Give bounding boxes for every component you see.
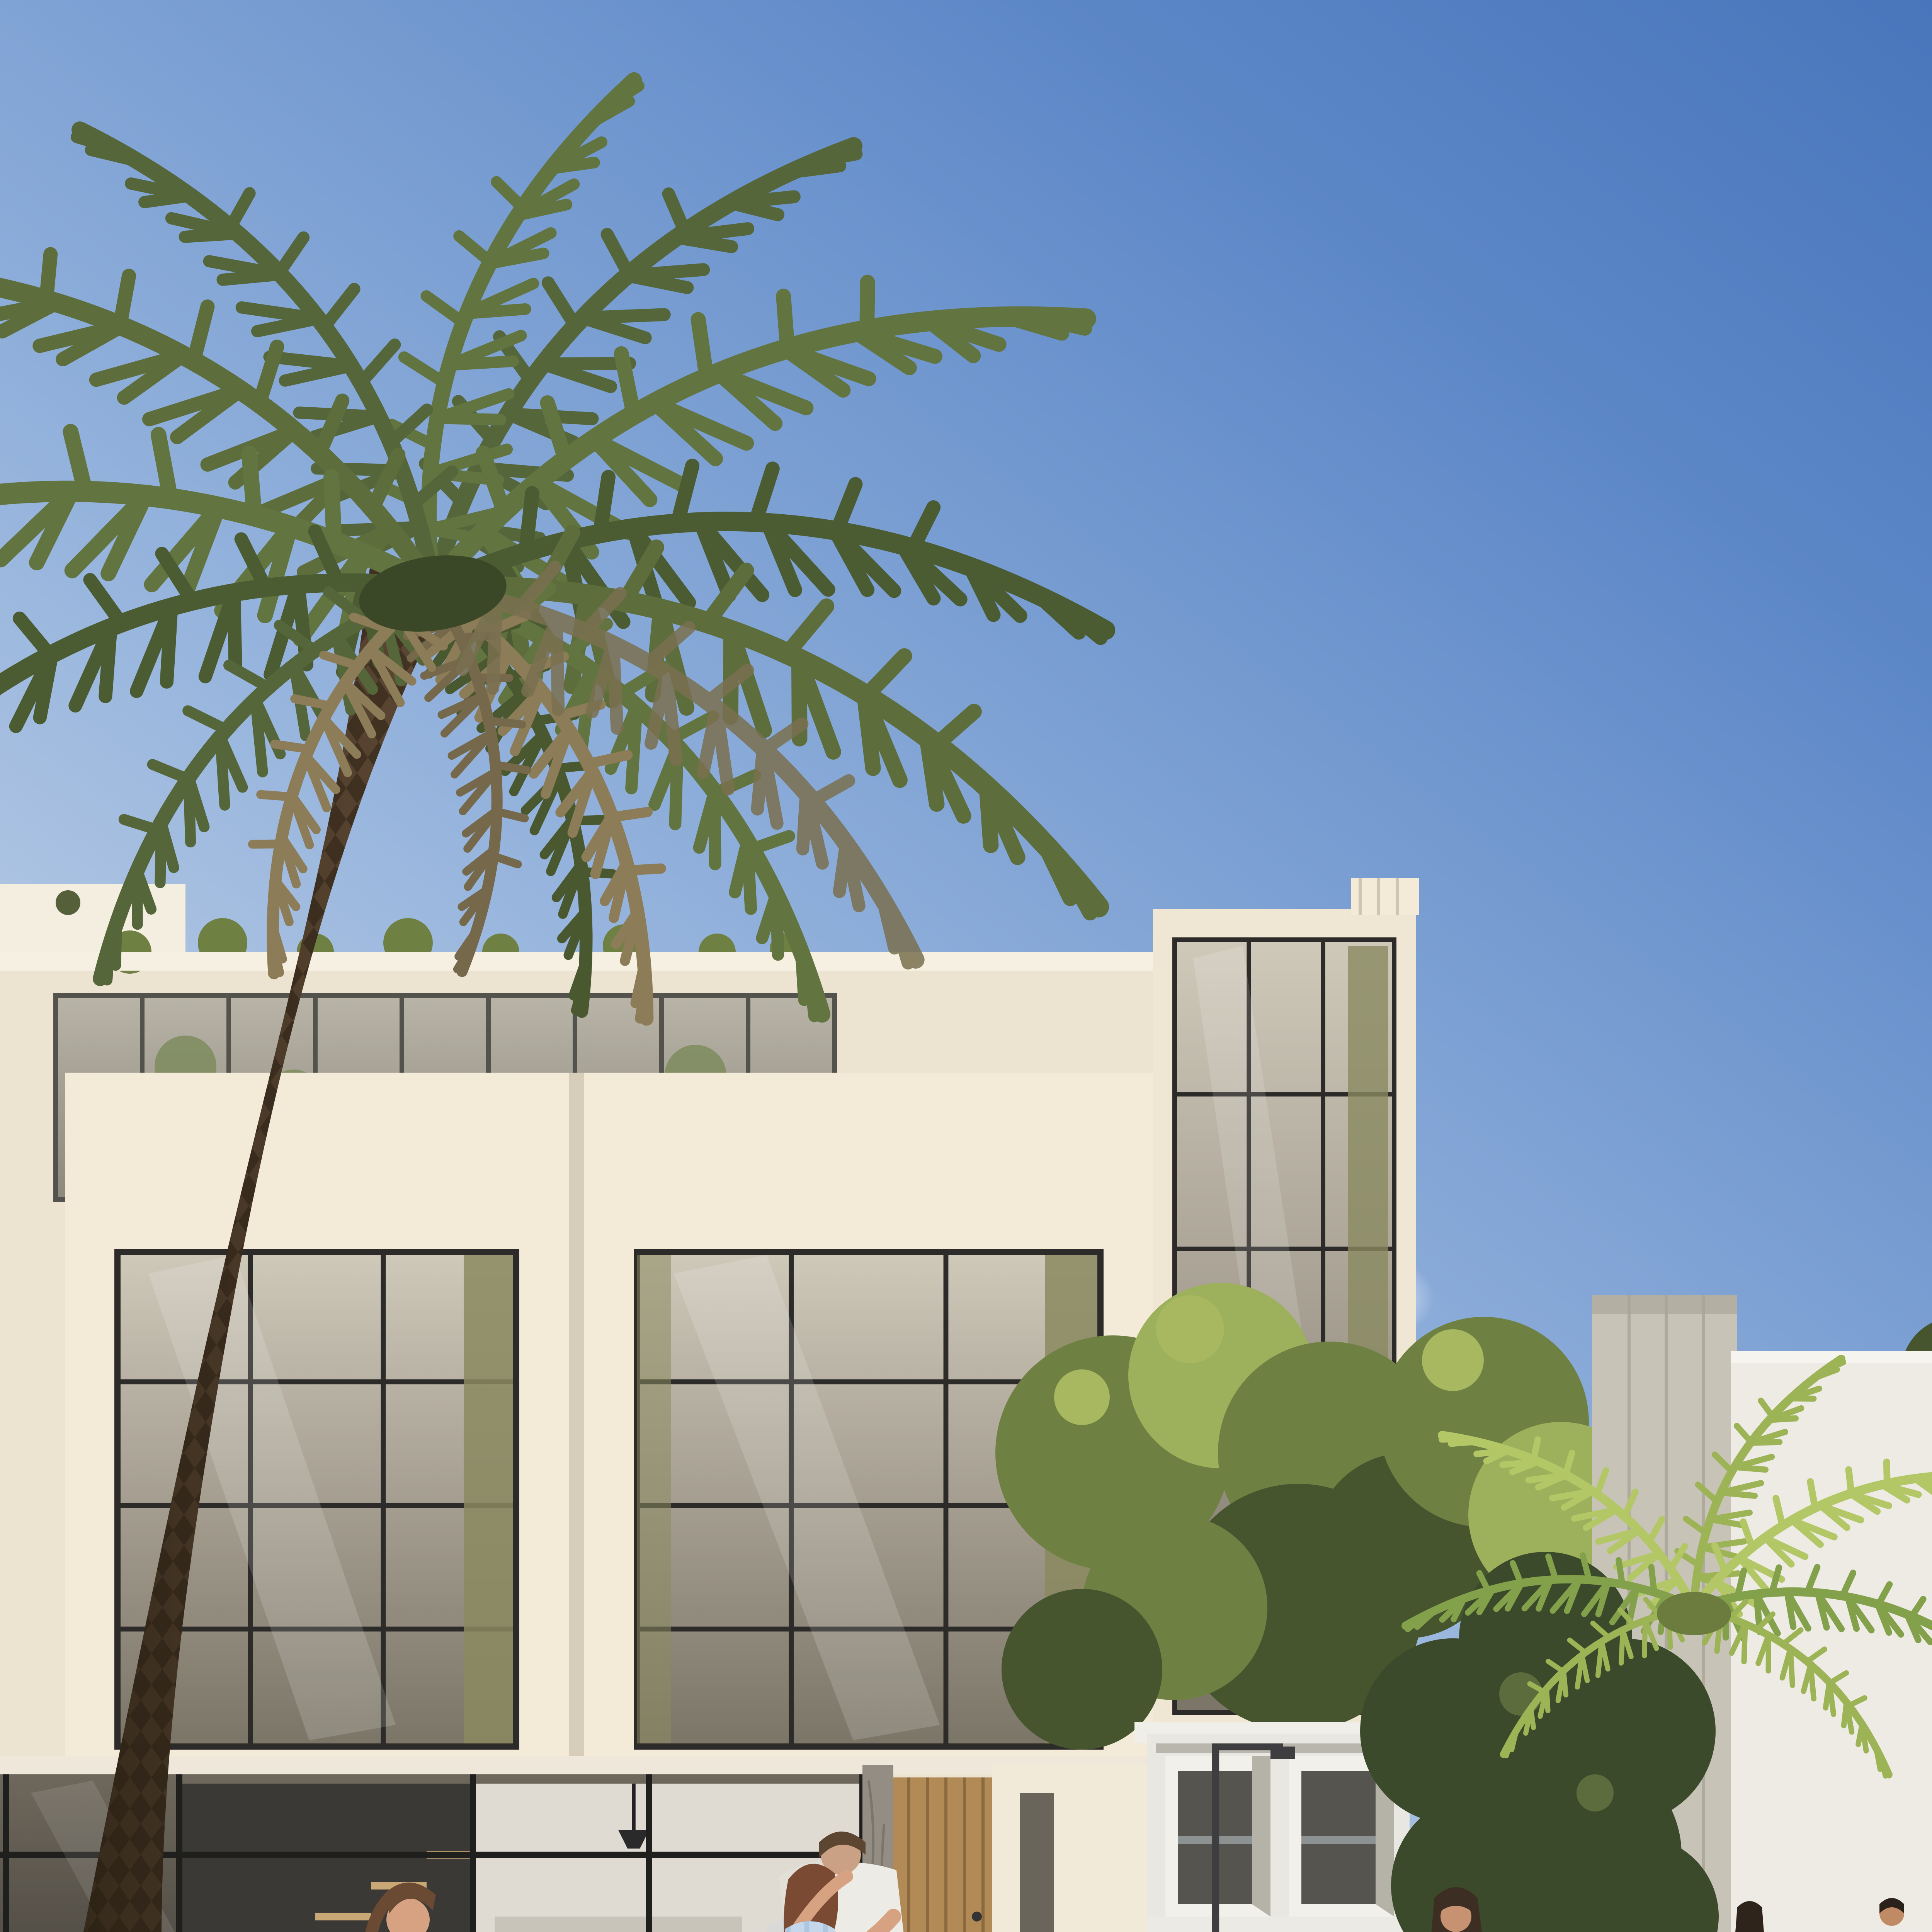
kitchen-counter	[495, 1917, 742, 1932]
curtain-olive	[464, 1255, 513, 1743]
storefront	[0, 1756, 1156, 1932]
slit-window	[1020, 1793, 1054, 1932]
return-wall	[992, 1765, 1156, 1932]
parapet-cap	[0, 952, 1156, 971]
architectural-rendering: Photorealistic architectural rendering o…	[0, 0, 1932, 1932]
door-handle	[972, 1912, 982, 1922]
roof-plant-silhouette	[56, 890, 80, 915]
